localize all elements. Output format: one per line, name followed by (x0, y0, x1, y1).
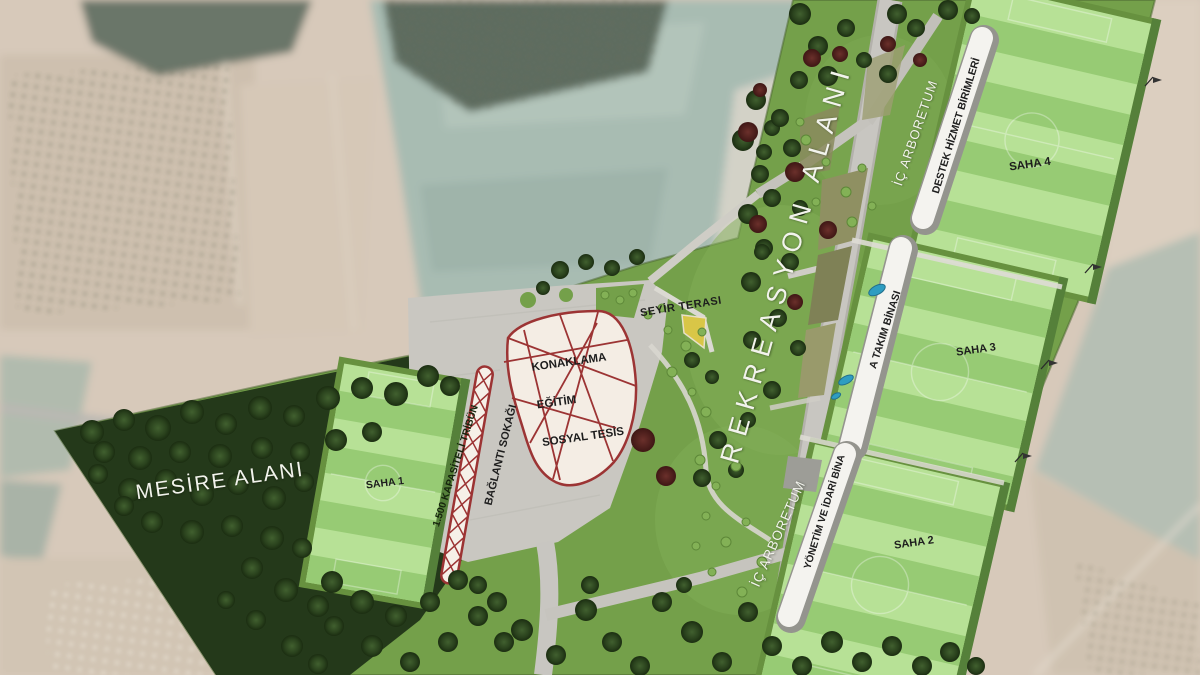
tree (741, 272, 761, 292)
tree (469, 576, 487, 594)
tree (128, 446, 152, 470)
shrub (664, 326, 672, 334)
tree (856, 52, 872, 68)
plaza-planter (520, 292, 536, 308)
tree (260, 526, 284, 550)
tree (361, 635, 383, 657)
tree (246, 610, 266, 630)
red-tree (803, 49, 821, 67)
site-plan-canvas: MESİRE ALANI REKREASYON ALANI İÇ ARBORET… (0, 0, 1200, 675)
tree (681, 621, 703, 643)
tree (652, 592, 672, 612)
orchard-grid (8, 62, 240, 315)
shrub (616, 296, 624, 304)
tree (575, 599, 597, 621)
shrub (796, 118, 804, 126)
tree (384, 382, 408, 406)
tree (325, 429, 347, 451)
tree (578, 254, 594, 270)
tree (494, 632, 514, 652)
tree (967, 657, 985, 675)
tree (351, 377, 373, 399)
tree (88, 464, 108, 484)
tree (887, 4, 907, 24)
shrub (712, 482, 720, 490)
red-tree (880, 36, 896, 52)
tree (308, 654, 328, 674)
shrub (692, 542, 700, 550)
tree (684, 352, 700, 368)
tree (141, 511, 163, 533)
tree (882, 636, 902, 656)
tree (241, 557, 263, 579)
shrub (698, 328, 706, 336)
tree (180, 400, 204, 424)
tree (762, 636, 782, 656)
tree (251, 437, 273, 459)
label-konaklama-line2: EĞİTİM (536, 388, 619, 412)
shrub (737, 587, 747, 597)
tree (283, 405, 305, 427)
shrub (601, 291, 609, 299)
tree (693, 469, 711, 487)
tree (551, 261, 569, 279)
tree (221, 515, 243, 537)
tree (487, 592, 507, 612)
tree (417, 365, 439, 387)
tree (93, 441, 115, 463)
tree (546, 645, 566, 665)
tree (676, 577, 692, 593)
tree (420, 592, 440, 612)
tree (215, 413, 237, 435)
shrub (868, 202, 876, 210)
tree (114, 496, 134, 516)
label-konaklama-tesis: KONAKLAMA EĞİTİM SOSYAL TESİS (527, 326, 626, 463)
tree (448, 570, 468, 590)
tree (907, 19, 925, 37)
tree (208, 444, 232, 468)
tree (754, 244, 770, 260)
tree (262, 486, 286, 510)
tree (362, 422, 382, 442)
tree (292, 538, 312, 558)
tree (604, 260, 620, 276)
tree (879, 65, 897, 83)
tree (248, 396, 272, 420)
tree (705, 370, 719, 384)
photo-field-patch (240, 78, 375, 336)
tree (712, 652, 732, 672)
shrub (695, 455, 705, 465)
tree (169, 441, 191, 463)
tree (321, 571, 343, 593)
tree (180, 520, 204, 544)
tree (756, 144, 772, 160)
tree (536, 281, 550, 295)
shrub (688, 388, 696, 396)
shrub (742, 518, 750, 526)
shrub (847, 217, 857, 227)
red-tree (656, 466, 676, 486)
tree (938, 0, 958, 20)
tree (821, 631, 843, 653)
label-konaklama-line3: SOSYAL TESİS (541, 426, 624, 450)
tree (217, 591, 235, 609)
tree (400, 652, 420, 672)
red-tree (631, 428, 655, 452)
shrub (701, 407, 711, 417)
shrub (841, 187, 851, 197)
shrub (708, 568, 716, 576)
shrub (721, 537, 731, 547)
red-tree (819, 221, 837, 239)
tree (385, 605, 407, 627)
tree (350, 590, 374, 614)
shrub (702, 512, 710, 520)
shrub (681, 341, 691, 351)
red-tree (738, 122, 758, 142)
tree (751, 165, 769, 183)
tree (763, 189, 781, 207)
tree (629, 249, 645, 265)
tree (113, 409, 135, 431)
plaza-planter (559, 288, 573, 302)
label-konaklama-line1: KONAKLAMA (531, 351, 614, 375)
shrub (629, 289, 637, 297)
red-tree (753, 83, 767, 97)
shrub (858, 164, 866, 172)
tree (281, 635, 303, 657)
tree (837, 19, 855, 37)
red-tree (913, 53, 927, 67)
tree (738, 602, 758, 622)
tree (145, 415, 171, 441)
tree (790, 71, 808, 89)
tree (852, 652, 872, 672)
tree (964, 8, 980, 24)
tree (771, 109, 789, 127)
tree (324, 616, 344, 636)
tree (316, 386, 340, 410)
tree (274, 578, 298, 602)
tree (940, 642, 960, 662)
tree (790, 340, 806, 356)
tree (581, 576, 599, 594)
tree (468, 606, 488, 626)
shrub (667, 367, 677, 377)
tree (307, 595, 329, 617)
tree (511, 619, 533, 641)
red-tree (749, 215, 767, 233)
tree (602, 632, 622, 652)
tree (783, 139, 801, 157)
tree (789, 3, 811, 25)
tree (438, 632, 458, 652)
tree (80, 420, 104, 444)
tree (440, 376, 460, 396)
